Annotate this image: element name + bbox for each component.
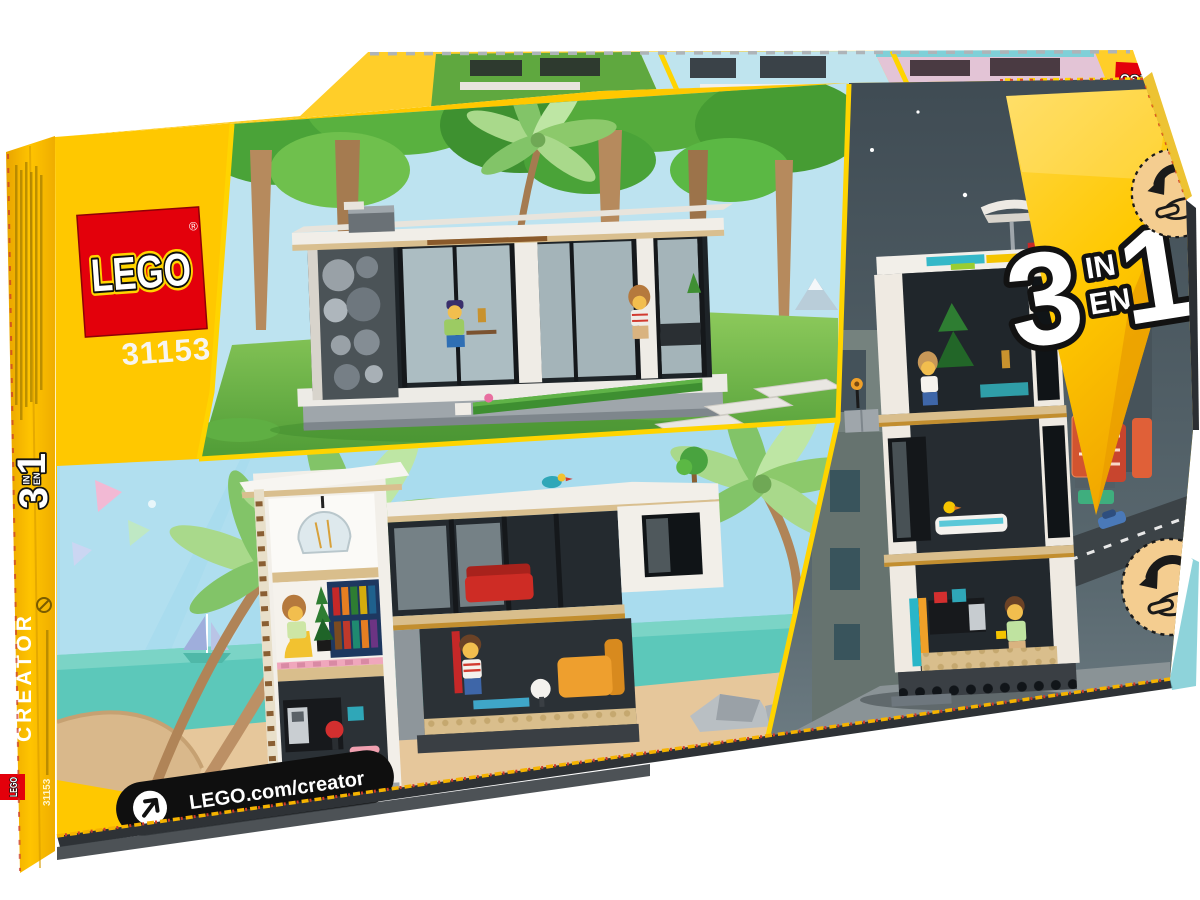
lego-box-product-photo: 3 IN EN 1 CREATOR LEGO <box>0 0 1200 900</box>
lego-logo: LEGO LEGO ® <box>77 207 207 337</box>
scene-forest-bungalow <box>190 48 865 475</box>
registered-mark: ® <box>188 219 198 234</box>
side-lego-logo: LEGO <box>0 774 25 800</box>
bungalow-glass <box>397 235 707 388</box>
box-side-panel: CREATOR LEGO 31153 <box>0 136 56 873</box>
svg-text:LEGO: LEGO <box>89 243 192 302</box>
box-art: 3 IN EN 1 CREATOR LEGO <box>0 0 1200 900</box>
red-sofa <box>464 563 534 603</box>
set-number: 31153 <box>120 331 212 372</box>
tower-middle-floor <box>882 417 1073 555</box>
tower-ground-floor <box>889 557 1079 673</box>
bookshelf <box>327 579 383 658</box>
circle-feature-wall <box>307 245 398 400</box>
box-main-panel: LEGO LEGO ® 31153 LEGO.com/creator <box>50 48 1200 845</box>
side-set-number: 31153 <box>42 778 53 806</box>
